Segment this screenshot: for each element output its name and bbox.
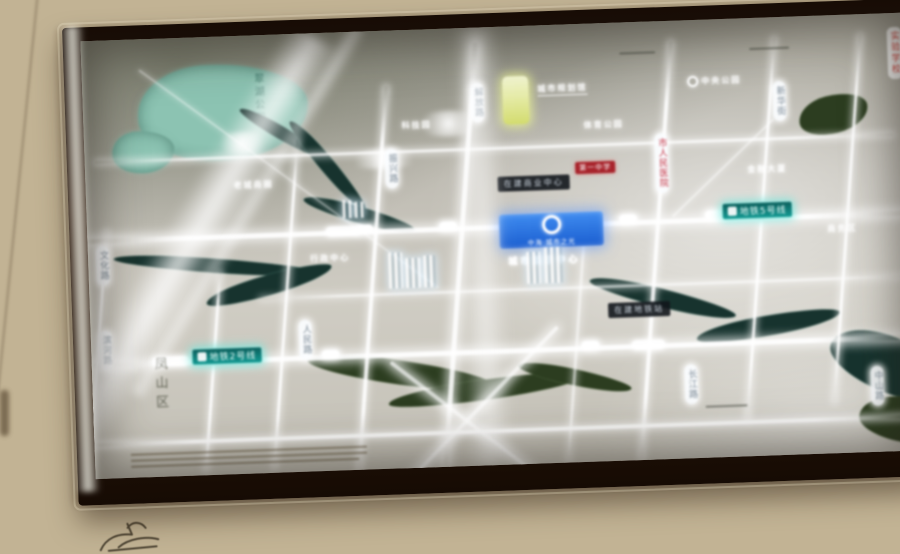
photo-of-illuminated-map-board: 翠湖公园 (0, 0, 900, 554)
road-pill: 解放路 (470, 82, 484, 122)
info-strip-label: 在建地铁站 (614, 304, 664, 315)
lake-tail (112, 130, 175, 174)
metro-line-5-badge: 地铁5号线 (722, 201, 793, 220)
info-strip-label: 在建商业中心 (504, 178, 564, 189)
building-icon (388, 252, 403, 288)
landmark-tower (502, 76, 530, 125)
metro-station-marker (581, 340, 599, 350)
road (273, 139, 299, 468)
poi-label: 行政中心 (310, 252, 350, 264)
district-label: 凤山区 (150, 356, 171, 414)
map-text-mark (749, 47, 789, 50)
wall-corner-seam (0, 0, 39, 554)
poi-label: 中央公园 (687, 74, 741, 87)
metro-station-marker (321, 350, 339, 360)
road-name-pill (325, 226, 361, 237)
info-strip: 在建商业中心 (497, 174, 569, 192)
poi-label: 老城商圈 (233, 179, 273, 191)
illuminated-map: 翠湖公园 (80, 13, 900, 479)
poi-label: 科技园 (401, 119, 431, 131)
info-strip: 在建地铁站 (608, 301, 670, 318)
poi-label-text: 中央公园 (701, 75, 741, 85)
metro-line-icon (197, 352, 206, 361)
road-pill: 长江路 (684, 364, 698, 404)
road-name-pill (631, 339, 665, 350)
map-content: 翠湖公园 (80, 13, 900, 479)
metro-station-marker (619, 214, 637, 224)
building-icon (354, 202, 365, 218)
road-pill: 中山路 (870, 366, 884, 406)
building-icon (526, 251, 541, 283)
metro-line-2-badge: 地铁2号线 (191, 346, 262, 365)
metro-station-marker (705, 210, 723, 220)
poi-label: 城市规划馆 (537, 82, 587, 97)
road (746, 37, 776, 421)
building-icon (544, 247, 563, 284)
park (795, 87, 872, 141)
school-label: 第一中学 (575, 161, 615, 174)
wall-sketch-drawing (87, 515, 199, 554)
building-icon (423, 255, 436, 287)
map-text-mark (619, 51, 655, 54)
road-pill: 振兴路 (384, 148, 398, 188)
school-label-edge: 实验学校 (886, 27, 900, 79)
road-pill: 新华街 (772, 81, 786, 121)
map-text-mark (706, 404, 748, 407)
hospital-label: 市人民医院 (654, 133, 669, 193)
road-pill: 人民路 (298, 319, 312, 359)
wall-smudge (0, 390, 9, 436)
road-pill: 滨河路 (99, 330, 113, 370)
road (640, 41, 673, 460)
poi-label: 商务区 (827, 222, 857, 234)
poi-ring-icon (687, 76, 698, 87)
metro-station-marker (439, 221, 457, 231)
project-logo-ring-icon (541, 214, 561, 234)
metro-line-icon (728, 207, 737, 216)
project-badge-label: 中海·城市之光 (528, 235, 576, 247)
project-location-badge: 中海·城市之光 (499, 211, 604, 249)
metro-line-label: 地铁5号线 (740, 203, 787, 218)
building-icon (405, 258, 421, 289)
metro-line-label: 地铁2号线 (209, 348, 256, 363)
map-display-board: 翠湖公园 (62, 0, 900, 506)
poi-label: 金融大厦 (747, 163, 787, 175)
building-icon (342, 200, 353, 218)
poi-label: 体育公园 (584, 118, 624, 130)
road-pill: 文化路 (96, 246, 110, 286)
road (357, 86, 387, 470)
